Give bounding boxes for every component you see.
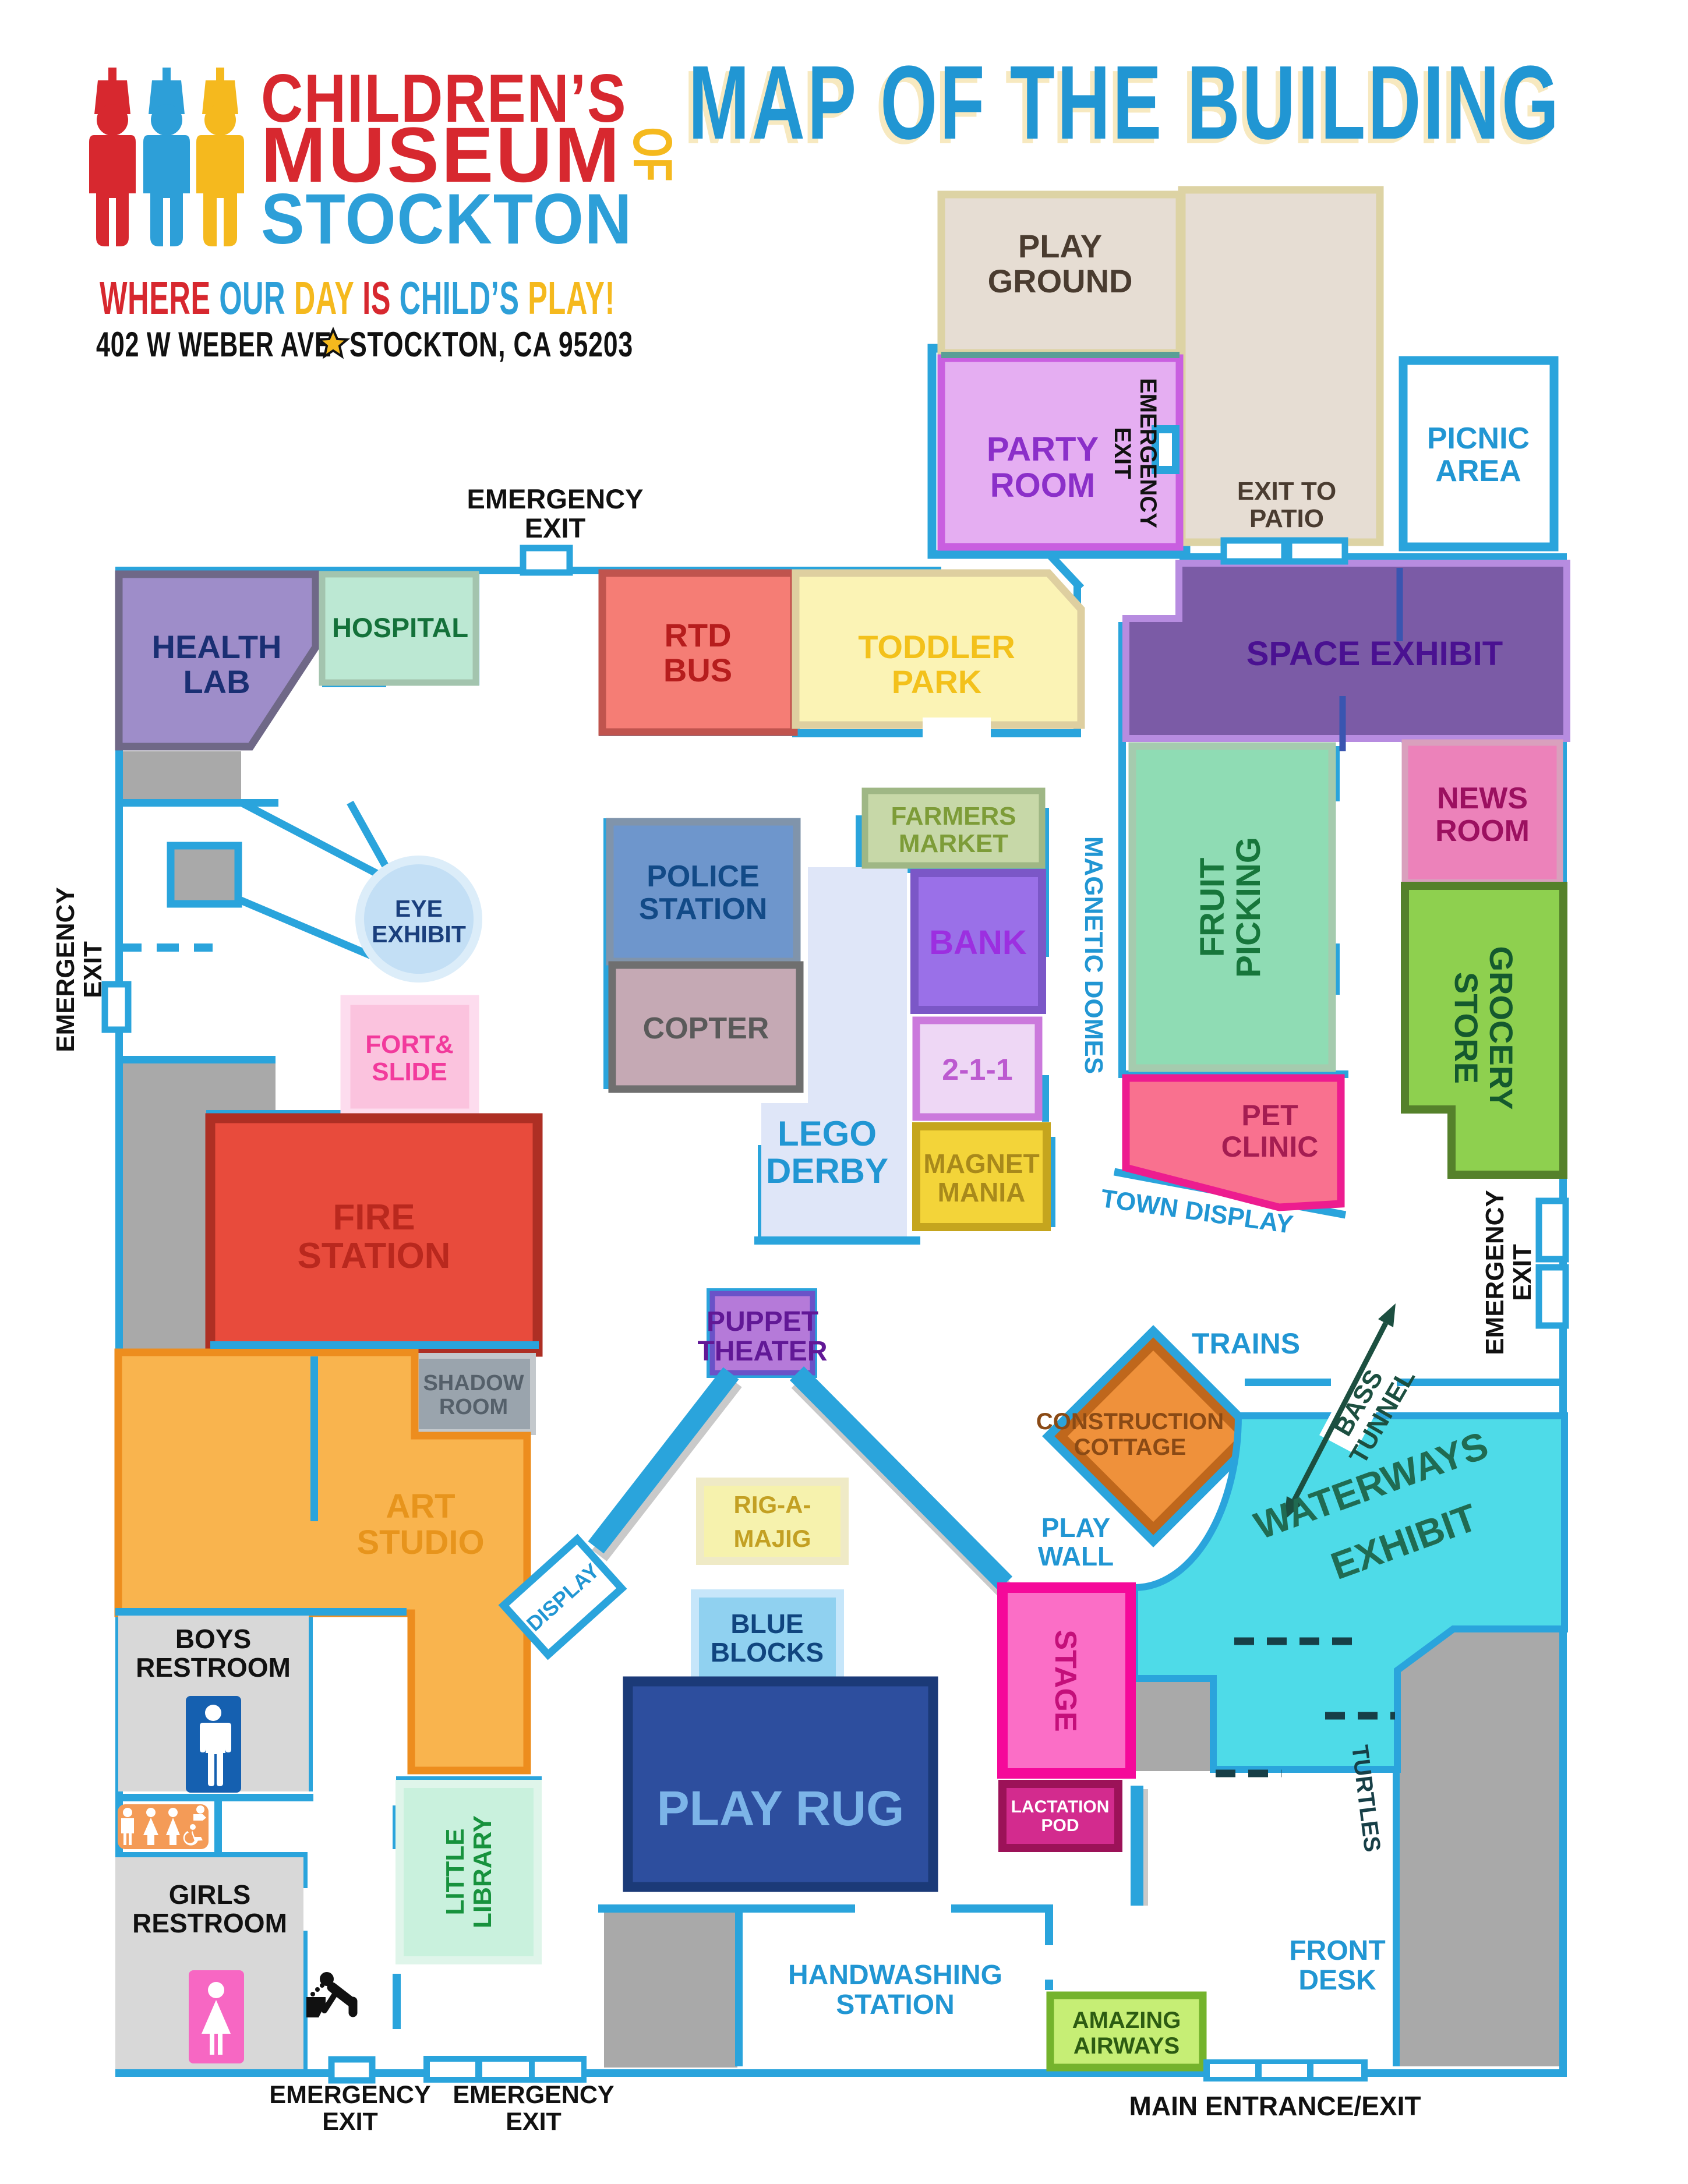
svg-text:AMAZINGAIRWAYS: AMAZINGAIRWAYS	[1072, 2008, 1181, 2059]
svg-text:PUPPETTHEATER: PUPPETTHEATER	[697, 1306, 827, 1367]
svg-text:STAGE: STAGE	[1048, 1630, 1082, 1731]
svg-text:402 W WEBER AVE: 402 W WEBER AVE	[96, 326, 331, 365]
svg-text:EMERGENCYEXIT: EMERGENCYEXIT	[51, 887, 107, 1052]
svg-text:BANK: BANK	[929, 924, 1027, 962]
svg-text:EMERGENCYEXIT: EMERGENCYEXIT	[453, 2081, 614, 2136]
svg-text:RTDBUS: RTDBUS	[663, 617, 732, 688]
svg-text:MAGNETIC DOMES: MAGNETIC DOMES	[1079, 836, 1108, 1074]
svg-text:EMERGENCYEXIT: EMERGENCYEXIT	[269, 2081, 430, 2136]
svg-text:COPTER: COPTER	[643, 1012, 769, 1045]
svg-text:2-1-1: 2-1-1	[942, 1053, 1012, 1087]
svg-text:EMERGENCYEXIT: EMERGENCYEXIT	[467, 483, 644, 543]
svg-text:MAGNETMANIA: MAGNETMANIA	[923, 1148, 1039, 1207]
svg-text:FRONTDESK: FRONTDESK	[1289, 1935, 1385, 1996]
svg-text:NEWSROOM: NEWSROOM	[1435, 782, 1530, 848]
svg-text:EMERGENCYEXIT: EMERGENCYEXIT	[1481, 1190, 1537, 1355]
svg-text:HOSPITAL: HOSPITAL	[332, 612, 468, 643]
svg-text:FARMERSMARKET: FARMERSMARKET	[891, 802, 1016, 858]
svg-text:PLAY RUG: PLAY RUG	[657, 1781, 905, 1836]
svg-text:HANDWASHINGSTATION: HANDWASHINGSTATION	[788, 1960, 1002, 2020]
svg-text:EXIT TOPATIO: EXIT TOPATIO	[1237, 477, 1336, 533]
svg-text:OF: OF	[621, 127, 683, 182]
svg-text:PICNICAREA: PICNICAREA	[1427, 422, 1530, 488]
svg-text:MAIN ENTRANCE/EXIT: MAIN ENTRANCE/EXIT	[1129, 2091, 1421, 2121]
svg-text:WHERE OUR DAY IS CHILD’S PLAY!: WHERE OUR DAY IS CHILD’S PLAY!	[100, 272, 615, 324]
svg-text:LEGODERBY: LEGODERBY	[766, 1114, 888, 1190]
svg-text:POLICESTATION: POLICESTATION	[639, 860, 768, 926]
svg-text:PLAYWALL: PLAYWALL	[1038, 1512, 1114, 1571]
svg-text:FRUITPICKING: FRUITPICKING	[1193, 837, 1267, 978]
svg-text:MAP OF THE BUILDING: MAP OF THE BUILDING	[688, 44, 1561, 161]
svg-text:STOCKTON: STOCKTON	[261, 179, 633, 259]
svg-text:STOCKTON, CA 95203: STOCKTON, CA 95203	[349, 326, 633, 365]
svg-text:PARTYROOM: PARTYROOM	[987, 430, 1099, 504]
svg-text:LITTLELIBRARY: LITTLELIBRARY	[441, 1815, 497, 1928]
svg-text:FORT&SLIDE: FORT&SLIDE	[365, 1030, 454, 1086]
svg-text:SPACE EXHIBIT: SPACE EXHIBIT	[1246, 635, 1503, 673]
svg-text:TRAINS: TRAINS	[1192, 1327, 1300, 1360]
